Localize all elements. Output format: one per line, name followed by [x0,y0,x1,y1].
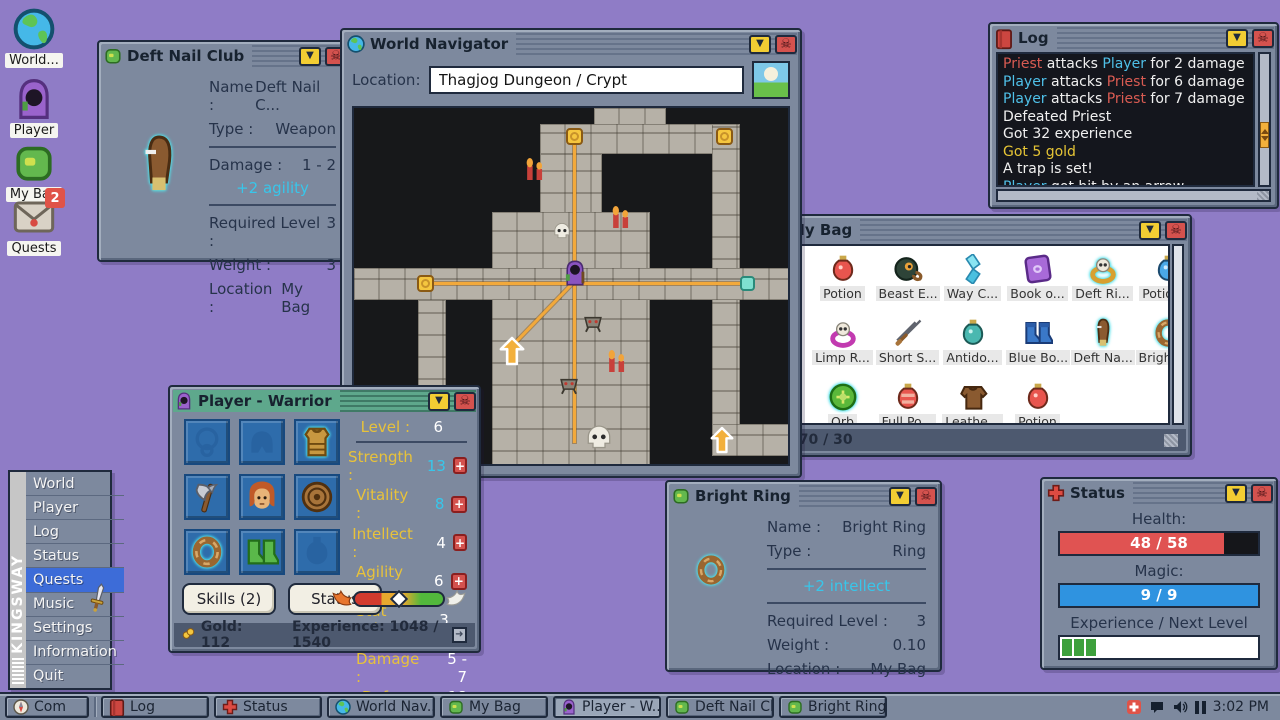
inventory-scrollbar[interactable] [1172,244,1184,425]
field-label: Required Level : [767,612,888,630]
inventory-item[interactable]: Deft Ri... [1070,254,1135,318]
inventory-item[interactable]: Beast E... [875,254,940,318]
window-status: Status ▼ ☠ Health: 48 / 58 Magic: 9 / 9 … [1040,477,1278,670]
inventory-item[interactable]: Blue Bo... [1005,318,1070,382]
health-bar: 48 / 58 [1058,531,1260,556]
clock: 3:02 PM [1213,699,1269,715]
item-name: Full Po... [879,414,937,425]
divider [209,204,336,206]
log-line: Priest attacks Player for 2 damage [1003,56,1248,74]
envelope-icon: 2 [13,196,55,238]
taskbar-button-player-w[interactable]: Player - W... [553,696,661,718]
inventory-item[interactable]: Potion... [1135,254,1170,318]
item-name: Leathe... [942,414,1003,425]
menu-item-quit[interactable]: Quit [26,665,124,688]
magic-value: 9 / 9 [1141,586,1178,604]
gold-amount: Gold: 112 [201,619,262,651]
book_purple-icon [1023,254,1053,284]
exp-segment [1086,639,1096,656]
map-player-marker[interactable] [562,258,588,288]
close-button[interactable]: ☠ [775,35,797,54]
menu-item-information[interactable]: Information [26,641,124,665]
bag-icon [104,47,122,65]
quests-badge: 2 [45,188,65,208]
item-name: Deft Ri... [1072,286,1132,301]
map-candles [610,204,632,230]
desktop-icon-label: World... [5,53,63,68]
bag-icon [787,699,803,715]
item-icon-ring [695,554,727,586]
inventory-item[interactable]: Limp R... [810,318,875,382]
ring_skull_magenta-icon [828,318,858,348]
log-messages: Priest attacks Player for 2 damagePlayer… [996,52,1255,187]
close-button[interactable]: ☠ [1252,29,1274,48]
level-value: 6 [417,418,443,436]
map-coin-marker[interactable] [566,128,583,145]
item-bonus: +2 agility [195,177,350,199]
map-candles [524,156,546,182]
damage-value: 5 - 7 [434,650,467,686]
taskbar-button-com[interactable]: Com [5,696,89,718]
log-line: Defeated Priest [1003,109,1248,127]
axe-equipped[interactable] [184,474,230,520]
status-title-bar[interactable]: Status ▼ ☠ [1045,482,1273,504]
tray-health-icon[interactable] [1126,699,1142,715]
minimize-button[interactable]: ▼ [1226,29,1248,48]
field-value: Ring [892,542,926,560]
damage-label: Damage : [356,650,427,686]
ring_plain-icon [1153,318,1171,348]
globe-icon [347,35,365,53]
close-button[interactable]: ☠ [915,487,937,506]
increase-strength-button[interactable]: + [453,457,467,474]
taskbar-button-deft-nail-cl[interactable]: Deft Nail Cl.. [666,696,774,718]
log-line: Player attacks Priest for 7 damage [1003,91,1248,109]
boots-equipped[interactable] [239,529,285,575]
item-name: Orb [828,414,857,425]
item-name: Way C... [944,286,1001,301]
log-title-bar[interactable]: Log ▼ ☠ [993,27,1274,49]
item-name: Potion [1015,414,1060,425]
divider [767,568,926,570]
field-value: 3 [916,612,926,630]
desktop-icon-player[interactable]: Player [2,78,66,138]
increase-intellect-button[interactable]: + [453,534,467,551]
desktop-icon-label: Player [10,123,58,138]
map-coin-marker[interactable] [417,275,434,292]
navigator-title-bar[interactable]: World Navigator ▼ ☠ [345,33,797,55]
boots_blue-icon [1023,318,1053,348]
player-portrait[interactable] [239,474,285,520]
stat-value: 4 [420,534,446,552]
log-scrollbar[interactable] [1258,52,1271,187]
inventory-panel: Potion Beast E... Way C... Book o... Def… [768,244,1170,425]
desktop-icon-world[interactable]: World... [2,8,66,68]
increase-agility-button[interactable]: + [451,573,467,590]
stat-label: Strength : [348,448,413,484]
window-title: Player - Warrior [198,392,332,410]
cross-icon [1047,484,1065,502]
inventory-item[interactable]: Way C... [940,254,1005,318]
player-title-bar[interactable]: Player - Warrior ▼ ☠ [173,390,476,412]
increase-vitality-button[interactable]: + [451,496,467,513]
field-value: 0.10 [893,636,926,654]
experience-text: Experience: 1048 / 1540 [292,619,446,651]
taskbar-button-world-nav[interactable]: World Nav... [327,696,435,718]
window-player-warrior: Player - Warrior ▼ ☠ Level : 6 Strength … [168,385,481,653]
minimize-button[interactable]: ▼ [749,35,771,54]
item-name: Antido... [943,350,1001,365]
alignment-meter [331,589,467,609]
menu-item-log[interactable]: Log [26,520,124,544]
magic-label: Magic: [1042,562,1276,580]
window-title: World Navigator [370,35,508,53]
player-icon [13,78,55,120]
stat-label: Vitality : [356,486,411,522]
exp-segment [1074,639,1084,656]
map-path-line [573,138,576,443]
player-icon [561,699,577,715]
minimize-button[interactable]: ▼ [1225,484,1247,503]
system-tray: 3:02 PM [1126,699,1275,715]
resize-grip[interactable] [1257,191,1269,200]
field-value: Weapon [275,120,336,138]
inventory-item[interactable]: Leathe... [940,382,1005,425]
sword-cursor [84,583,114,613]
map-candles [606,348,628,374]
field-label: Location : [209,280,281,316]
alignment-marker [390,590,408,608]
item-name: Potion... [1139,286,1170,301]
field-label: Type : [767,542,811,560]
menu-item-settings[interactable]: Settings [26,617,124,641]
club-icon [1088,318,1118,348]
item-bonus: +2 intellect [753,575,940,597]
armor_leather-icon [958,382,988,412]
potion-slot[interactable] [294,529,340,575]
experience-label: Experience / Next Level [1042,614,1276,632]
log-line: Player got hit by an arrow [1003,179,1248,188]
map-exit-arrow[interactable] [710,426,734,454]
inventory-item[interactable]: Potion [810,254,875,318]
experience-bar [1058,635,1260,660]
book-icon [109,699,125,715]
taskbar-divider [94,697,96,717]
bag-icon [674,699,690,715]
taskbar: Com Log Status World Nav... My Bag Playe… [0,692,1280,720]
ring_skull_gold-icon [1088,254,1118,284]
window-deft-nail-club: Deft Nail Club ▼ ☠ Name :Deft Nail C... … [97,40,352,262]
menu-item-status[interactable]: Status [26,544,124,568]
window-log: Log ▼ ☠ Priest attacks Player for 2 dama… [988,22,1279,209]
potion_full-icon [893,382,923,412]
item-name: Deft Na... [1071,350,1135,365]
inventory-item[interactable]: Antido... [940,318,1005,382]
field-value: 3 [326,214,336,250]
log-line: Player attacks Priest for 6 damage [1003,74,1248,92]
book-icon [995,29,1013,47]
minimize-button[interactable]: ▼ [428,392,450,411]
devil-wing-icon [331,589,353,609]
amulet-slot[interactable] [184,419,230,465]
skills-button[interactable]: Skills (2) [182,583,276,615]
player-icon [175,392,193,410]
map-coin-marker[interactable] [716,128,733,145]
stat-value: 8 [418,495,444,513]
level-label: Level : [361,418,410,436]
stat-label: Intellect : [352,525,413,561]
field-label: Name : [767,518,821,536]
window-title: Log [1018,29,1049,47]
magic-bar: 9 / 9 [1058,583,1260,608]
field-value: Deft Nail C... [255,78,336,114]
inventory-item[interactable]: Short S... [875,318,940,382]
log-line: A trap is set! [1003,161,1248,179]
deft-title-bar[interactable]: Deft Nail Club ▼ ☠ [102,45,347,67]
divider [356,441,467,443]
field-value: Bright Ring [842,518,926,536]
item-name: Limp R... [812,350,873,365]
desktop-icon-quests[interactable]: 2 Quests [2,196,66,256]
globe-icon [335,699,351,715]
map-skull-marker [552,222,572,242]
log-line: Got 32 experience [1003,126,1248,144]
menu-item-player[interactable]: Player [26,496,124,520]
item-name: Book o... [1007,286,1067,301]
potion_blue-icon [1153,254,1171,284]
map-skull-marker [584,424,614,454]
stat-row-vitality: Vitality : 8 + [356,486,467,522]
field-value: 3 [326,256,336,274]
bag-icon [13,142,55,184]
window-title: Deft Nail Club [127,47,244,65]
tray-chat-icon[interactable] [1149,699,1165,715]
sword-icon [893,318,923,348]
stat-value: 13 [420,457,446,475]
helmet-slot[interactable] [239,419,285,465]
window-bright-ring: Bright Ring ▼ ☠ Name :Bright Ring Type :… [665,480,942,672]
inventory-item[interactable]: Book o... [1005,254,1070,318]
map-brazier [582,314,604,334]
item-name: Short S... [876,350,939,365]
item-name: Bright R... [1136,350,1171,365]
inventory-item[interactable]: Deft Na... [1070,318,1135,382]
map-gem-marker[interactable] [740,276,755,291]
shield-equipped[interactable] [294,474,340,520]
cross-icon [222,699,238,715]
potion_red-icon [828,254,858,284]
field-label: Name : [209,78,255,114]
map-brazier [558,376,580,396]
map-exit-arrow[interactable] [499,336,525,366]
taskbar-button-status[interactable]: Status [214,696,322,718]
angel-wing-icon [445,589,467,609]
field-label: Weight : [767,636,829,654]
field-value: My Bag [870,660,926,678]
window-title: Bright Ring [695,487,791,505]
bag-icon [448,699,464,715]
inventory-item[interactable]: Potion [1005,382,1070,425]
health-value: 48 / 58 [1130,534,1188,552]
item-name: Blue Bo... [1006,350,1070,365]
tray-volume-icon[interactable] [1172,699,1188,715]
field-label: Location : [767,660,840,678]
desktop-icon-label: Quests [7,241,60,256]
crystal-icon [958,254,988,284]
minimize-button[interactable]: ▼ [1139,221,1161,240]
bag-icon [672,487,690,505]
armor-equipped[interactable] [294,419,340,465]
health-label: Health: [1042,510,1276,528]
kingsway-banner: KINGSWAY [10,472,26,688]
close-button[interactable]: ☠ [1165,221,1187,240]
bomb-icon [893,254,923,284]
log-line: Got 5 gold [1003,144,1248,162]
ring-equipped[interactable] [184,529,230,575]
compass-icon [13,699,29,715]
potion_red-icon [1023,382,1053,412]
item-name: Beast E... [876,286,940,301]
resize-grip[interactable] [1164,434,1178,447]
expand-button[interactable]: ➜ [452,627,467,643]
divider [767,602,926,604]
taskbar-button-bright-ring[interactable]: Bright Ring [779,696,887,718]
globe-icon [13,8,55,50]
tray-pause-icon[interactable] [1195,701,1206,714]
close-button[interactable]: ☠ [1251,484,1273,503]
location-input[interactable] [429,66,745,94]
inventory-item[interactable]: Orb [810,382,875,425]
flask_teal-icon [958,318,988,348]
field-value: My Bag [281,280,336,316]
gold-coin-icon [182,627,195,643]
divider [209,146,336,148]
item-icon-club [141,134,177,182]
close-button[interactable]: ☠ [454,392,476,411]
scroll-thumb[interactable] [1260,122,1269,148]
start-menu: KINGSWAY WorldPlayerLogStatusQuestsMusic… [8,470,112,690]
bag-title-bar[interactable]: My Bag ▼ ☠ [765,219,1187,241]
bright-title-bar[interactable]: Bright Ring ▼ ☠ [670,485,937,507]
banner-lines [12,658,24,684]
taskbar-button-log[interactable]: Log [101,696,209,718]
log-bottom-strip [996,189,1271,202]
field-label: Weight : [209,256,271,274]
field-label: Damage : [209,156,282,174]
window-title: Status [1070,484,1125,502]
stat-row-strength: Strength : 13 + [356,448,467,484]
inventory-item[interactable]: Full Po... [875,382,940,425]
minimize-button[interactable]: ▼ [889,487,911,506]
map-stone [540,154,602,214]
stat-row-intellect: Intellect : 4 + [356,525,467,561]
item-name: Potion [820,286,865,301]
weather-picture[interactable] [752,61,790,99]
location-label: Location: [352,71,421,89]
field-label: Required Level : [209,214,326,250]
orb-icon [828,382,858,412]
stat-value: 6 [418,572,444,590]
menu-item-world[interactable]: World [26,472,124,496]
window-my-bag: My Bag ▼ ☠ Potion Beast E... Way C... Bo… [760,214,1192,457]
minimize-button[interactable]: ▼ [299,47,321,66]
taskbar-button-my-bag[interactable]: My Bag [440,696,548,718]
inventory-item[interactable]: Bright R... [1135,318,1170,382]
field-label: Type : [209,120,253,138]
exp-segment [1062,639,1072,656]
field-value: 1 - 2 [302,156,336,174]
